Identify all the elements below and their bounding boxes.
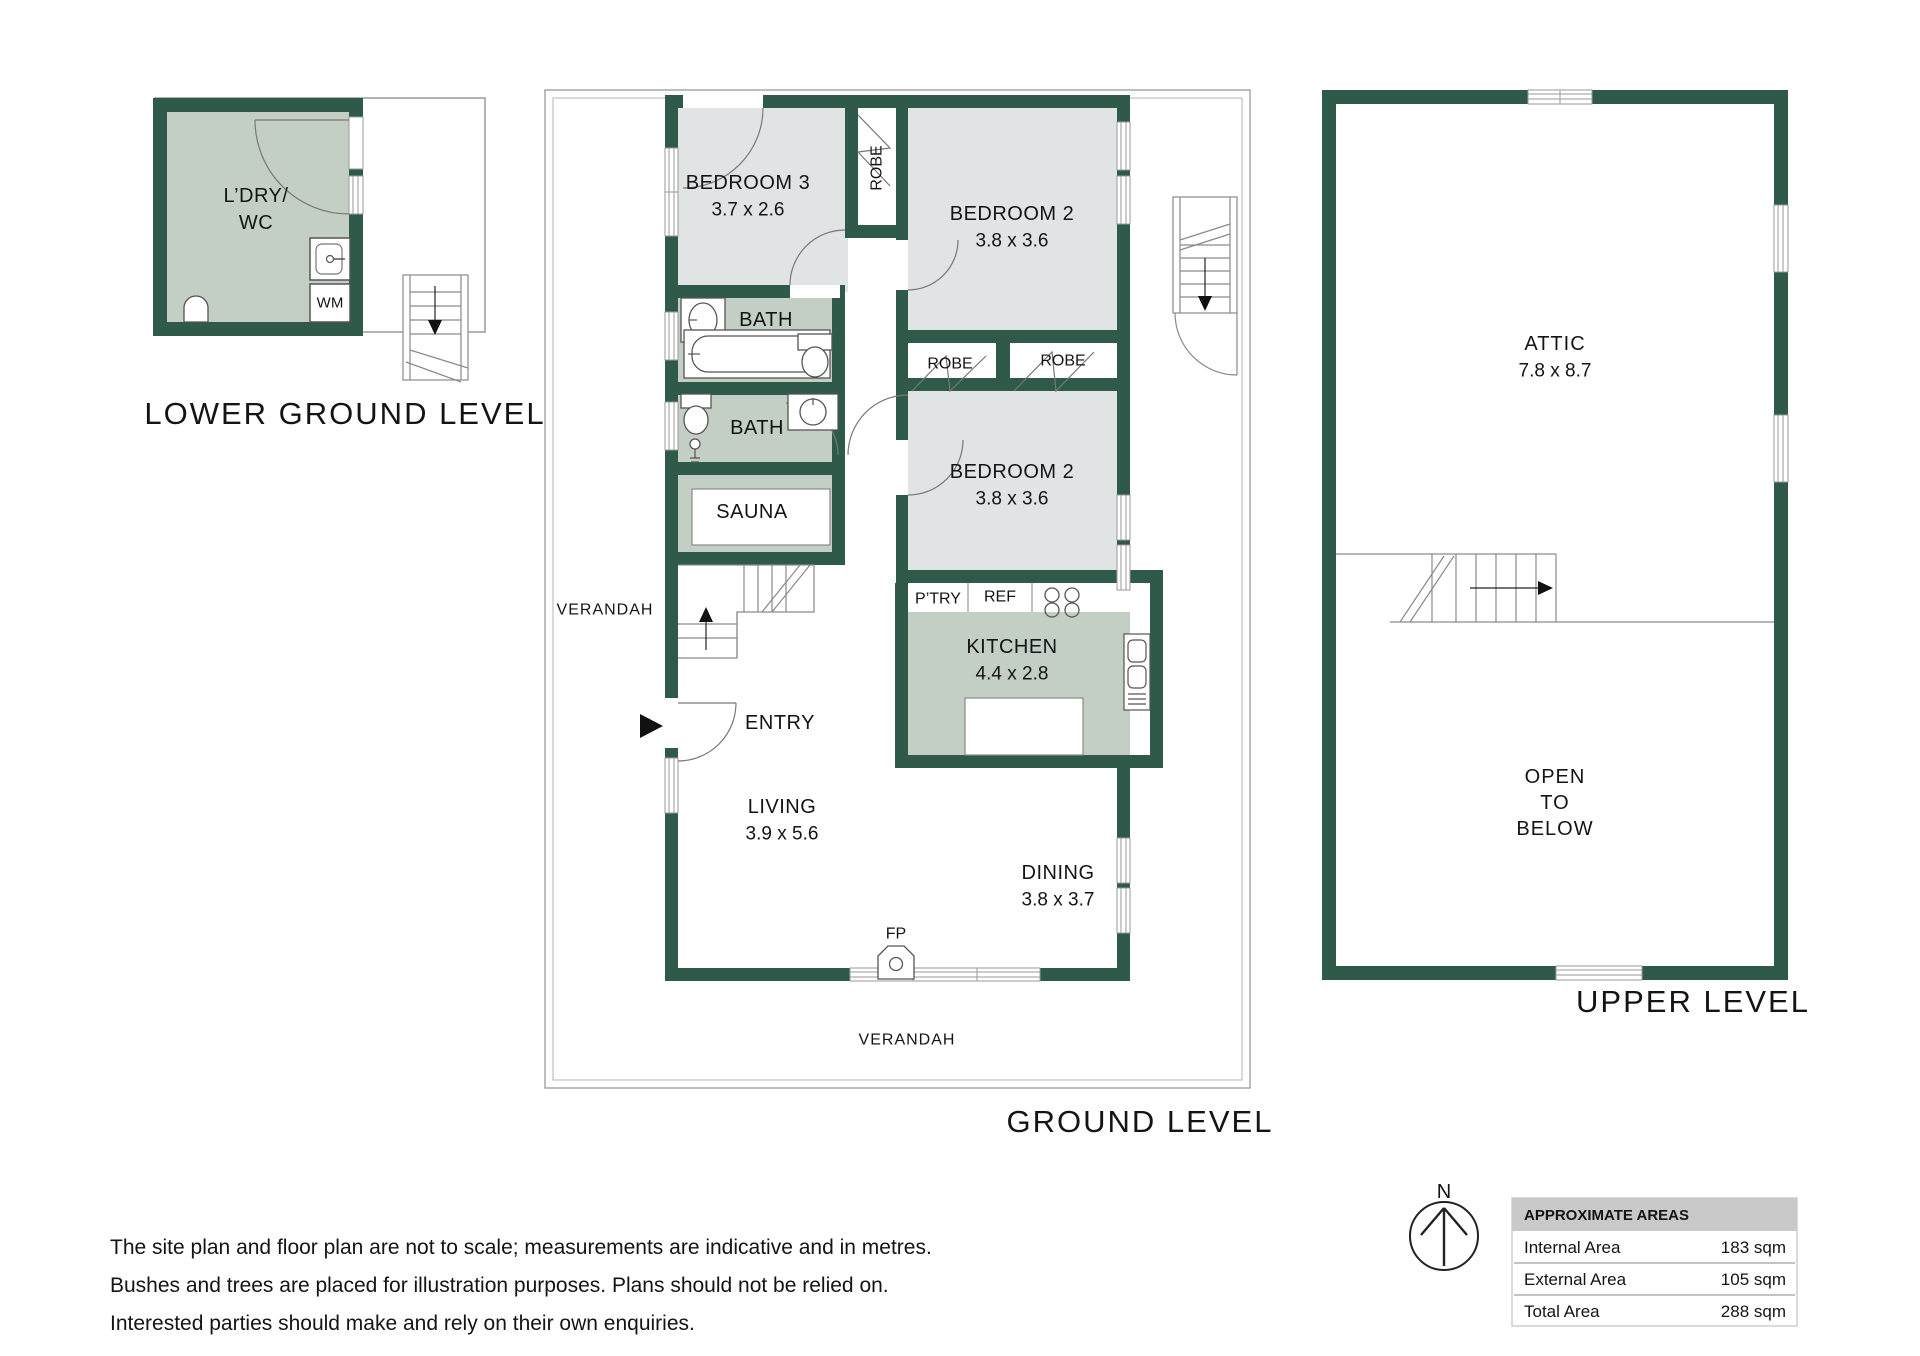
bath-lower-toilet-icon — [681, 394, 711, 434]
lower-level-title: LOWER GROUND LEVEL — [144, 396, 545, 431]
robe-vertical-label: ROBE — [869, 145, 886, 190]
fridge-label: REF — [984, 589, 1016, 606]
laundry-label: L’DRY/ — [224, 185, 289, 207]
window — [1117, 176, 1130, 224]
attic-label: ATTIC — [1524, 333, 1585, 355]
disclaimer-line-3: Interested parties should make and rely … — [110, 1312, 695, 1335]
area-row-value: 105 sqm — [1721, 1270, 1786, 1289]
window — [1117, 838, 1130, 883]
floorplan-page: WM L’DRY/ WC LOWER GROUND LEVEL — [0, 0, 1920, 1356]
disclaimer: The site plan and floor plan are not to … — [110, 1236, 932, 1335]
bath-upper-label: BATH — [739, 309, 793, 331]
area-row-value: 288 sqm — [1721, 1302, 1786, 1321]
upper-level-title: UPPER LEVEL — [1576, 984, 1810, 1019]
robe-mid-label: ROBE — [927, 356, 972, 373]
room-bedroom3 — [672, 102, 850, 292]
open-below-line2: TO — [1540, 792, 1569, 814]
window — [665, 312, 678, 360]
entry-label: ENTRY — [745, 712, 815, 734]
area-row-label: Internal Area — [1524, 1238, 1621, 1257]
window — [1556, 966, 1642, 980]
fireplace-icon — [878, 946, 914, 979]
bath-lower-sink-icon — [788, 394, 838, 430]
wm-label: WM — [317, 295, 344, 312]
disclaimer-line-1: The site plan and floor plan are not to … — [110, 1236, 932, 1259]
ground-plan: BEDROOM 3 3.7 x 2.6 ROBE BEDROOM 2 3.8 x… — [545, 90, 1273, 1139]
kitchen-dim: 4.4 x 2.8 — [976, 664, 1049, 685]
bedroom2-top-dim: 3.8 x 3.6 — [976, 231, 1049, 252]
pantry-label: P’TRY — [915, 591, 961, 608]
lower-toilet-icon — [184, 296, 208, 322]
north-compass: N — [1410, 1181, 1478, 1270]
kitchen-island — [965, 698, 1083, 755]
upper-plan: ATTIC 7.8 x 8.7 OPEN TO BELOW UPPER LEVE… — [1322, 90, 1810, 1019]
areas-table: APPROXIMATE AREAS Internal Area 183 sqm … — [1512, 1198, 1797, 1326]
window — [665, 758, 678, 813]
bedroom2-top-label: BEDROOM 2 — [950, 203, 1075, 225]
open-below-line1: OPEN — [1525, 766, 1586, 788]
north-label: N — [1437, 1181, 1451, 1203]
laundry-sink-icon — [310, 238, 350, 280]
window — [1528, 90, 1592, 104]
floorplan-canvas: WM L’DRY/ WC LOWER GROUND LEVEL — [0, 0, 1920, 1356]
window — [665, 402, 678, 450]
kitchen-sink-icon — [1124, 634, 1150, 710]
living-label: LIVING — [748, 796, 817, 818]
verandah-left-label: VERANDAH — [557, 602, 654, 619]
robe-right-label: ROBE — [1040, 353, 1085, 370]
bath-lower-label: BATH — [730, 417, 784, 439]
kitchen-label: KITCHEN — [966, 636, 1057, 658]
bedroom3-dim: 3.7 x 2.6 — [712, 200, 785, 221]
open-below-line3: BELOW — [1516, 818, 1593, 840]
fp-label: FP — [886, 926, 906, 943]
bedroom2-mid-dim: 3.8 x 3.6 — [976, 489, 1049, 510]
living-dim: 3.9 x 5.6 — [746, 824, 819, 845]
window — [665, 148, 678, 236]
lower-ground-plan: WM L’DRY/ WC LOWER GROUND LEVEL — [144, 98, 545, 431]
dining-label: DINING — [1022, 862, 1095, 884]
areas-table-header: APPROXIMATE AREAS — [1524, 1207, 1689, 1224]
window — [1117, 545, 1130, 590]
verandah-bottom-label: VERANDAH — [859, 1032, 956, 1049]
laundry-label2: WC — [239, 212, 273, 234]
window — [1117, 888, 1130, 933]
dining-dim: 3.8 x 3.7 — [1022, 890, 1095, 911]
window — [1117, 122, 1130, 170]
lower-door-gap — [349, 117, 363, 169]
window — [1774, 205, 1788, 272]
area-row-value: 183 sqm — [1721, 1238, 1786, 1257]
sauna-label: SAUNA — [716, 501, 788, 523]
area-row-label: External Area — [1524, 1270, 1627, 1289]
compass-arrow-icon — [1421, 1208, 1467, 1266]
bedroom2-mid-label: BEDROOM 2 — [950, 461, 1075, 483]
attic-dim: 7.8 x 8.7 — [1519, 361, 1592, 382]
washing-machine-icon: WM — [310, 284, 350, 322]
disclaimer-line-2: Bushes and trees are placed for illustra… — [110, 1274, 889, 1297]
lower-window — [349, 176, 363, 214]
window — [1117, 495, 1130, 540]
area-row-label: Total Area — [1524, 1302, 1600, 1321]
ground-level-title: GROUND LEVEL — [1007, 1104, 1274, 1139]
window — [1774, 415, 1788, 482]
bedroom3-label: BEDROOM 3 — [686, 172, 811, 194]
